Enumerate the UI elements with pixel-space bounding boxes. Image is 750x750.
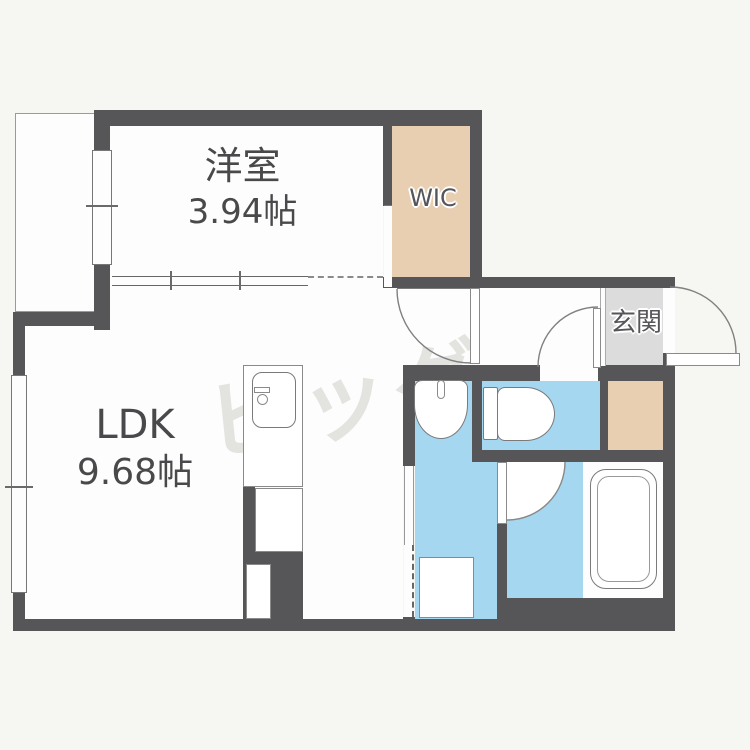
western-room-label: 洋室 3.94帖 bbox=[115, 143, 370, 233]
ldk-name: LDK bbox=[40, 400, 230, 450]
washing-machine-pan bbox=[419, 557, 474, 618]
western-room-area: 3.94帖 bbox=[115, 191, 370, 234]
entrance-label: 玄関 bbox=[606, 302, 666, 339]
wall-hall-bottom-right bbox=[598, 365, 675, 381]
wall-hall-top-band bbox=[383, 277, 675, 288]
sliding-door-tick-2 bbox=[239, 271, 241, 290]
wall-bath-washroom bbox=[497, 524, 507, 600]
wic-door-opening bbox=[384, 205, 392, 287]
vanity-faucet-icon bbox=[437, 380, 445, 399]
wall-bottom-right bbox=[497, 598, 675, 631]
washroom-folding-door bbox=[404, 545, 414, 617]
front-door-arc bbox=[670, 287, 736, 353]
wall-kitchen-stub bbox=[243, 487, 255, 552]
washroom-door-opening bbox=[404, 466, 414, 545]
floor-plan: ビッグ bbox=[0, 0, 750, 750]
wall-bath-top-band bbox=[472, 450, 675, 462]
wic-label: WIC bbox=[396, 184, 470, 212]
sliding-door-tick-1 bbox=[170, 271, 172, 290]
balcony-area bbox=[15, 113, 95, 312]
window-western-tick bbox=[86, 205, 118, 207]
wall-western-wic bbox=[383, 126, 392, 206]
wall-right-lower bbox=[663, 353, 675, 630]
window-ldk-tick bbox=[5, 486, 33, 488]
entrance-storage-floor bbox=[608, 379, 663, 450]
wall-western-left-upper bbox=[94, 110, 110, 152]
kitchen-faucet-knob-icon bbox=[257, 394, 268, 405]
ldk-area: 9.68帖 bbox=[40, 450, 230, 495]
toilet-bowl-icon bbox=[497, 387, 555, 441]
western-room-name: 洋室 bbox=[115, 143, 370, 191]
wall-top bbox=[94, 110, 482, 126]
open-boundary-dashed bbox=[308, 276, 383, 278]
kitchen-faucet-bar bbox=[254, 387, 270, 393]
wall-washroom-left bbox=[403, 365, 415, 466]
ldk-label: LDK 9.68帖 bbox=[40, 400, 230, 495]
window-ldk bbox=[11, 375, 27, 593]
wall-washroom-toilet bbox=[472, 381, 482, 452]
sliding-door-western bbox=[112, 276, 308, 286]
hall-door-open-line bbox=[397, 288, 471, 289]
bath-door-leaf bbox=[497, 462, 507, 524]
window-western bbox=[92, 150, 112, 265]
wall-toilet-storage bbox=[600, 365, 608, 455]
wall-wic-right bbox=[470, 110, 482, 288]
toilet-door-opening bbox=[540, 365, 598, 381]
refrigerator-space bbox=[255, 488, 303, 552]
bathroom-floor bbox=[507, 462, 583, 598]
front-door-leaf bbox=[666, 353, 740, 366]
wall-left-lower bbox=[13, 593, 25, 631]
bathtub-inner-rim bbox=[597, 476, 650, 582]
hall-door-leaf bbox=[470, 288, 480, 364]
toilet-tank-icon bbox=[483, 387, 498, 440]
wall-left-upper bbox=[13, 312, 25, 375]
wall-hall-bottom-left bbox=[403, 365, 540, 381]
wall-balcony-bottom bbox=[15, 312, 110, 326]
toilet-door-leaf bbox=[593, 308, 601, 368]
kitchen-lower-opening bbox=[246, 564, 271, 619]
wall-bottom-left bbox=[13, 619, 507, 631]
